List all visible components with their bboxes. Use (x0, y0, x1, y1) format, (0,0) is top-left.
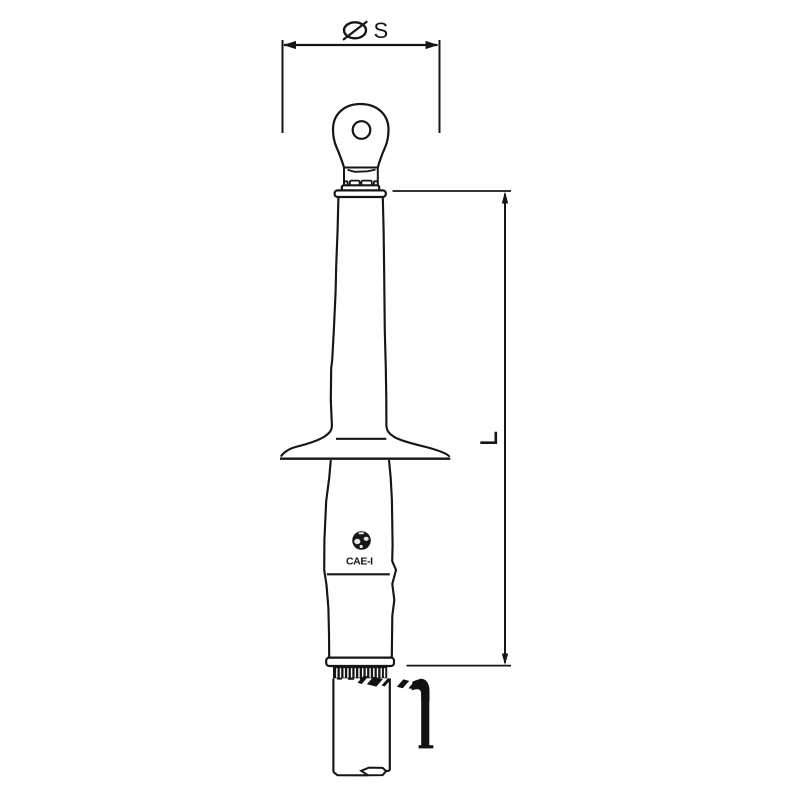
svg-text:CAE-I: CAE-I (346, 556, 373, 568)
svg-text:S: S (374, 18, 389, 43)
